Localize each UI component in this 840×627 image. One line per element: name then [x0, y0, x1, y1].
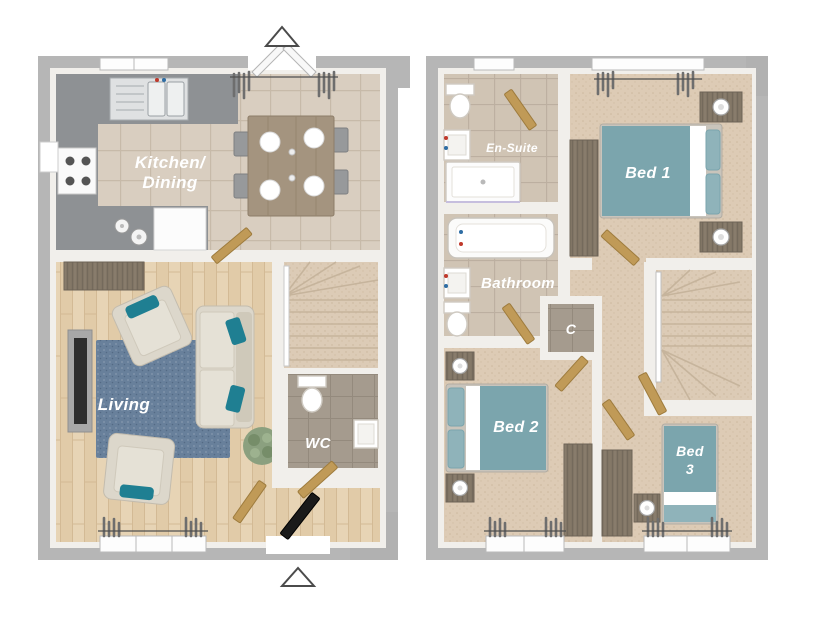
- shower: [446, 162, 520, 202]
- bedside-table: [700, 92, 742, 122]
- room-label: Kitchen/: [135, 153, 207, 172]
- first-floor-plan: En-Suite Bathroom C: [426, 56, 768, 560]
- room-label: WC: [305, 435, 332, 452]
- wardrobe: [564, 444, 592, 536]
- room-label: En-Suite: [486, 141, 538, 155]
- interior-wall: [592, 348, 602, 542]
- floor-plan-image: Kitchen/ Dining: [0, 0, 840, 627]
- living-window: [100, 536, 206, 552]
- bed2-window: [486, 536, 564, 552]
- room-label: Bed: [676, 443, 704, 459]
- room-label: Bed 2: [493, 419, 539, 436]
- front-doorway-bottom: [266, 536, 330, 554]
- staircase: [656, 270, 752, 400]
- dining-chair: [333, 170, 348, 194]
- wash-basin: [354, 420, 378, 448]
- room-label: Bathroom: [481, 275, 555, 292]
- floorplan-canvas: Kitchen/ Dining: [0, 0, 840, 627]
- ensuite-window: [474, 58, 514, 70]
- entrance-marker-icon: [282, 568, 314, 586]
- sofa: [196, 306, 254, 428]
- room-label: Dining: [142, 173, 197, 192]
- kitchen-dining-room: Kitchen/ Dining: [40, 74, 380, 250]
- bedside-table: [446, 352, 474, 380]
- ground-floor-plan: Kitchen/ Dining: [38, 27, 410, 586]
- wc-room: WC: [288, 374, 378, 468]
- stair-handrail: [284, 266, 289, 366]
- armchair: [103, 433, 176, 506]
- bed1-window: [592, 58, 704, 70]
- sideboard: [64, 262, 144, 290]
- extractor-recess: [40, 142, 58, 172]
- bath: [448, 218, 554, 258]
- interior-wall: [570, 258, 592, 270]
- room-label: C: [566, 321, 577, 337]
- wall-wing: [396, 56, 410, 88]
- wardrobe: [570, 140, 598, 256]
- entrance-marker-icon: [266, 27, 298, 46]
- wardrobe: [602, 450, 632, 536]
- room-label: Living: [98, 395, 151, 414]
- room-label: 3: [686, 461, 694, 477]
- wash-basin: [444, 130, 470, 160]
- cupboard-room: C: [540, 296, 602, 360]
- dining-set: [234, 116, 348, 216]
- bedside-table: [700, 222, 742, 252]
- wash-basin: [444, 268, 470, 298]
- cooker: [58, 148, 96, 194]
- bedside-table: [446, 474, 474, 502]
- dining-chair: [333, 128, 348, 152]
- dining-chair: [234, 174, 249, 198]
- tv-unit: [68, 330, 92, 432]
- dining-chair: [234, 132, 249, 156]
- stair-handrail: [656, 272, 661, 382]
- staircase: [284, 262, 378, 368]
- kitchen-sink: [110, 78, 188, 120]
- room-label: Bed 1: [625, 165, 671, 182]
- dishwasher: [154, 208, 206, 250]
